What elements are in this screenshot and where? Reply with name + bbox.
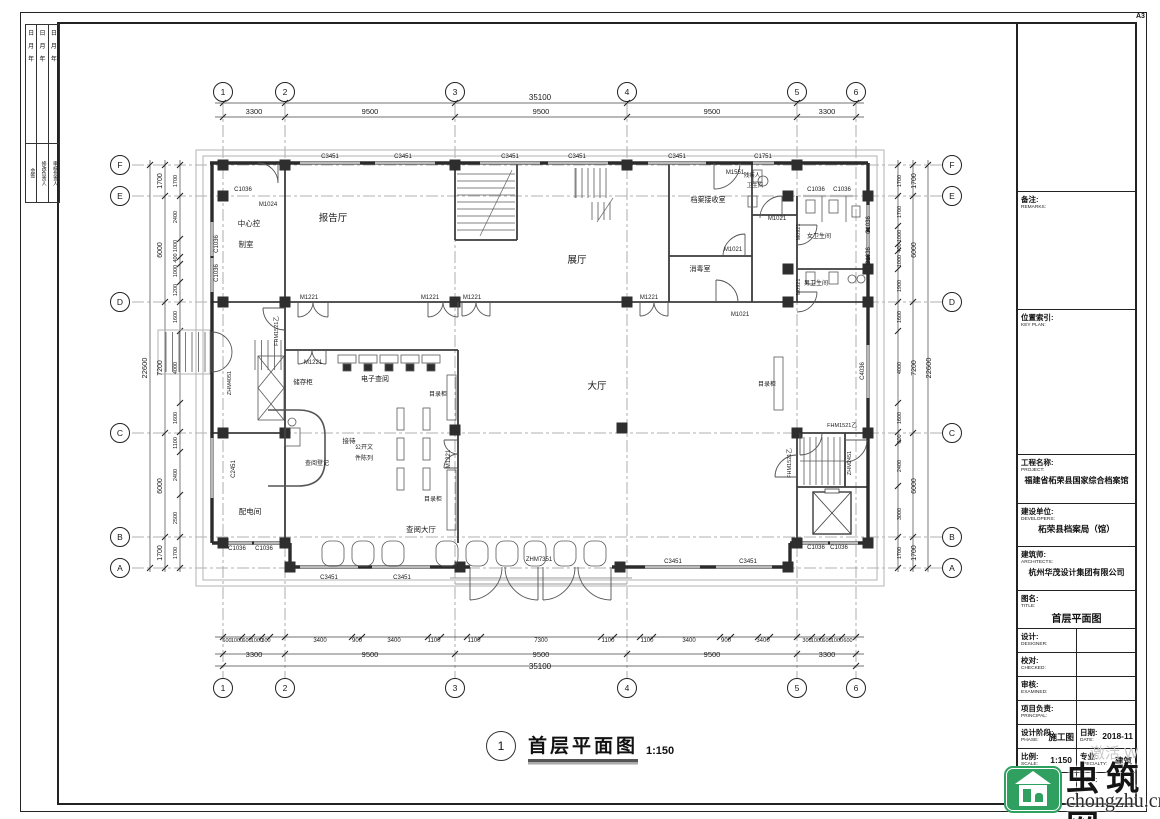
tag-label: M1221 [446, 449, 452, 468]
tag-label: C1751 [754, 154, 772, 160]
dimension-label: 4000 [173, 362, 179, 374]
tag-label: M1221 [304, 360, 323, 366]
dimension-label: 1100 [602, 638, 616, 644]
watermark-domain: chongzhu.cn [1066, 790, 1160, 813]
remarks-label: 备注: [1018, 192, 1135, 205]
principal-value-cell [1077, 701, 1135, 724]
dimension-label: 3400 [313, 638, 327, 644]
grid-bubble-label: A [949, 563, 955, 573]
room-label: 残疾人 [744, 171, 761, 179]
dimension-label: 9500 [362, 107, 379, 116]
tag-label: C1036 [866, 247, 872, 265]
room-label: 男卫生间 [804, 279, 828, 287]
grid-bubble-label: 4 [625, 87, 630, 97]
room-label: 储存柜 [293, 377, 313, 386]
grid-bubble-label: C [949, 428, 955, 438]
architects-label-en: ARCHITECTS: [1018, 560, 1135, 565]
architects-label: 建筑师: [1018, 547, 1135, 560]
title-block: 备注: REMARKS: 位置索引: KEY PLAN: 工程名称: PROJE… [1016, 22, 1135, 801]
tag-label: M0921 [796, 224, 802, 241]
designer-label-en: DESIGNER: [1018, 642, 1076, 647]
grid-bubble-label: 6 [854, 683, 859, 693]
room-label: 中心控 [238, 218, 261, 228]
floor-plan-canvas: 123456123456FEDCBAFEDCBA3510033009500950… [0, 0, 1160, 819]
dimension-label: 35100 [529, 662, 552, 671]
room-label: 目录柜 [758, 380, 776, 388]
tag-label: M1221 [300, 295, 319, 301]
dimension-label: 3300 [246, 650, 263, 659]
tag-label: C1036 [866, 216, 872, 234]
tag-label: C3451 [321, 154, 339, 160]
room-label: 档案接收室 [691, 195, 726, 204]
tag-label: C1036 [214, 264, 220, 282]
room-label: 目录柜 [429, 390, 447, 398]
dimension-label: 1000 [811, 638, 823, 644]
dimension-label: 3400 [682, 638, 696, 644]
room-label: 报告厅 [319, 212, 348, 224]
logo-house-body-icon [1019, 785, 1047, 806]
dimension-label: 9500 [362, 650, 379, 659]
grid-bubble-label: B [117, 532, 123, 542]
grid-bubble-label: 1 [221, 683, 226, 693]
dimension-label: 600 [897, 434, 903, 443]
architects-name: 杭州华茂设计集团有限公司 [1018, 567, 1135, 578]
grid-bubble-label: C [117, 428, 123, 438]
room-label: 接待 [343, 436, 357, 445]
room-label: 目录柜 [424, 495, 442, 503]
developers-section: 建设单位: DEVELOPERS: 柘荣县档案局（馆） [1018, 504, 1135, 547]
dimension-label: 1000 [231, 638, 243, 644]
examined-row: 审核: EXAMINED: [1018, 677, 1135, 701]
tag-label: M0921 [796, 279, 802, 296]
drawing-sheet: A3 日 月 年 会签 日 月 年 修改负责人 日 月 年 审核负责人 [0, 0, 1160, 819]
examined-label: 审核: [1018, 677, 1076, 690]
dimension-label: 1100 [468, 638, 482, 644]
tag-label: M1021 [724, 247, 743, 253]
tag-label: C3451 [320, 575, 338, 581]
tag-label: M1221 [640, 295, 659, 301]
dimension-label: 900 [352, 638, 363, 644]
architects-section: 建筑师: ARCHITECTS: 杭州华茂设计集团有限公司 [1018, 547, 1135, 591]
dimension-label: 1000 [831, 638, 843, 644]
dimension-label: 900 [721, 638, 732, 644]
tag-label: M1024 [259, 202, 278, 208]
grid-bubble-label: 2 [283, 683, 288, 693]
grid-bubble-label: 5 [795, 683, 800, 693]
tag-label: M1221 [421, 295, 440, 301]
dimension-label: 6000 [157, 478, 164, 494]
dimension-label: 22600 [924, 358, 933, 379]
title-block-logo-area [1018, 22, 1135, 192]
principal-label-en: PRINCIPAL: [1018, 714, 1076, 719]
tag-label: M1021 [731, 312, 750, 318]
date-value: 2018-11 [1102, 731, 1133, 741]
dimension-label: 1700 [157, 173, 164, 189]
plan-labels: 123456123456FEDCBAFEDCBA3510033009500950… [111, 83, 962, 698]
dimension-label: 22600 [140, 358, 149, 379]
tag-label: C3451 [394, 154, 412, 160]
dimension-label: 1000 [173, 265, 179, 277]
phase-value: 施工图 [1048, 731, 1074, 743]
grid-bubble-label: E [949, 191, 955, 201]
developers-label: 建设单位: [1018, 504, 1135, 517]
room-label: 展厅 [567, 255, 587, 266]
tag-label: M1551 [726, 170, 745, 176]
dimension-label: 6000 [157, 242, 164, 258]
dimension-label: 1700 [911, 173, 918, 189]
room-label: 制室 [239, 239, 254, 249]
tag-label: FHM1521乙 [786, 448, 793, 478]
tag-label: M1021 [768, 216, 787, 222]
dimension-label: 2500 [173, 512, 179, 524]
room-label: 女卫生间 [807, 232, 831, 240]
tag-label: C3451 [393, 575, 411, 581]
tag-label: ZHM7351 [526, 557, 553, 563]
dimension-label: 3400 [387, 638, 401, 644]
dimension-label: 2400 [173, 469, 179, 481]
tag-label: FHM1521乙 [827, 422, 857, 429]
checked-row: 校对: CHECKED: [1018, 653, 1135, 677]
room-label: 电子查阅 [361, 374, 389, 383]
dimension-label: 1000 [897, 255, 903, 267]
room-label: 查阅登记 [305, 459, 329, 467]
remarks-section: 备注: REMARKS: [1018, 192, 1135, 310]
developers-name: 柘荣县档案局（馆） [1018, 523, 1135, 535]
dimension-label: 600 [843, 638, 852, 644]
dimension-label: 7200 [157, 360, 164, 376]
designer-value-cell [1077, 629, 1135, 652]
key-plan-section: 位置索引: KEY PLAN: [1018, 310, 1135, 455]
project-label-en: PROJECT: [1018, 468, 1135, 473]
key-plan-label: 位置索引: [1018, 310, 1135, 323]
tag-label: C1036 [214, 235, 220, 253]
tag-label: C3451 [664, 559, 682, 565]
grid-bubble-label: F [949, 160, 954, 170]
tag-label: C1036 [228, 546, 246, 552]
checked-value-cell [1077, 653, 1135, 676]
dimension-label: 3000 [897, 508, 903, 520]
principal-row: 项目负责: PRINCIPAL: [1018, 701, 1135, 725]
drawing-number-bubble: 1 [486, 731, 516, 761]
key-plan-label-en: KEY PLAN: [1018, 323, 1135, 328]
dimension-label: 1100 [428, 638, 442, 644]
grid-bubble-label: 4 [625, 683, 630, 693]
dimension-label: 1000 [173, 240, 179, 252]
room-label: 卫生间 [747, 181, 764, 189]
developers-label-en: DEVELOPERS: [1018, 517, 1135, 522]
tag-label: C1036 [807, 545, 825, 551]
project-name: 福建省柘荣县国家综合档案馆 [1018, 475, 1135, 486]
dimension-label: 300 [261, 638, 270, 644]
dimension-label: 1600 [173, 311, 179, 323]
grid-bubble-label: D [949, 297, 955, 307]
examined-value-cell [1077, 677, 1135, 700]
drawing-title-scale: 1:150 [646, 745, 674, 757]
dimension-label: 6000 [911, 242, 918, 258]
tag-label: C1036 [830, 545, 848, 551]
remarks-label-en: REMARKS: [1018, 205, 1135, 210]
dimension-label: 1100 [641, 638, 655, 644]
dimension-label: 9500 [704, 650, 721, 659]
tag-label: C3451 [568, 154, 586, 160]
examined-label-en: EXAMINED: [1018, 690, 1076, 695]
dimension-label: 3300 [819, 107, 836, 116]
dimension-label: 9500 [533, 107, 550, 116]
room-label: 大厅 [587, 380, 607, 392]
dimension-label: 6000 [911, 478, 918, 494]
dimension-label: 400 [897, 243, 903, 252]
dimension-label: 1700 [897, 206, 903, 218]
grid-bubble-label: 6 [854, 87, 859, 97]
checked-label-en: CHECKED: [1018, 666, 1076, 671]
logo-glyph [1035, 793, 1043, 802]
room-label: 查阅大厅 [406, 524, 436, 534]
tag-label: ZHM2451 [847, 451, 853, 475]
dimension-label: 3300 [246, 107, 263, 116]
dimension-label: 2400 [897, 460, 903, 472]
dimension-label: 1700 [173, 547, 179, 559]
room-label: 配电间 [239, 506, 262, 516]
dimension-label: 1600 [897, 412, 903, 424]
chongzhu-logo [1004, 766, 1062, 813]
dimension-label: 1600 [173, 412, 179, 424]
dimension-label: 400 [173, 253, 179, 262]
grid-bubble-label: F [117, 160, 122, 170]
drawing-name-section: 图名: TITLE: 首层平面图 [1018, 591, 1135, 629]
tag-label: M1221 [463, 295, 482, 301]
dimension-label: 1700 [897, 175, 903, 187]
dimension-label: 2400 [173, 211, 179, 223]
dimension-label: 4000 [897, 362, 903, 374]
project-label: 工程名称: [1018, 455, 1135, 468]
dimension-label: 1700 [157, 545, 164, 561]
logo-glyph [1023, 789, 1031, 802]
tag-label: C2451 [231, 460, 237, 478]
drawing-title-text: 首层平面图 [528, 736, 638, 762]
dimension-label: 9500 [533, 650, 550, 659]
dimension-label: 9500 [704, 107, 721, 116]
principal-label: 项目负责: [1018, 701, 1076, 714]
tag-label: C4036 [860, 362, 866, 380]
dimension-label: 1900 [897, 280, 903, 292]
drawing-name-label-en: TITLE: [1018, 604, 1135, 609]
dimension-label: 35100 [529, 93, 552, 102]
grid-bubble-label: 1 [221, 87, 226, 97]
tag-label: C1036 [234, 187, 252, 193]
dimension-label: 1700 [173, 175, 179, 187]
grid-bubble-label: E [117, 191, 123, 201]
tag-label: C1036 [255, 546, 273, 552]
dimension-label: 1700 [911, 545, 918, 561]
dimension-label: 1100 [173, 437, 179, 449]
tag-label: C1036 [807, 187, 825, 193]
dimension-label: 1000 [897, 230, 903, 242]
room-label: 消毒室 [690, 264, 711, 273]
tag-label: C3451 [739, 559, 757, 565]
checked-label: 校对: [1018, 653, 1076, 666]
dimension-label: 3400 [756, 638, 770, 644]
drawing-title: 1 首层平面图 1:150 [486, 731, 674, 761]
grid-bubble-label: 3 [453, 683, 458, 693]
tag-label: C1036 [833, 187, 851, 193]
logo-house-roof-icon [1015, 771, 1051, 784]
drawing-name-label: 图名: [1018, 591, 1135, 604]
grid-bubble-label: 5 [795, 87, 800, 97]
dimension-label: 3300 [819, 650, 836, 659]
drawing-name-value: 首层平面图 [1018, 610, 1135, 625]
dimension-label: 1700 [897, 547, 903, 559]
dimension-label: 7300 [534, 638, 548, 644]
project-section: 工程名称: PROJECT: 福建省柘荣县国家综合档案馆 [1018, 455, 1135, 504]
dimension-label: 7200 [911, 360, 918, 376]
grid-bubble-label: 3 [453, 87, 458, 97]
grid-bubble-label: A [117, 563, 123, 573]
dimension-label: 1200 [173, 284, 179, 296]
tag-label: C3451 [501, 154, 519, 160]
tag-label: FHM1521乙 [273, 316, 280, 346]
tag-label: ZHM4051 [227, 371, 233, 395]
grid-bubble-label: D [117, 297, 123, 307]
dimension-label: 1600 [897, 311, 903, 323]
grid-bubble-label: 2 [283, 87, 288, 97]
tag-label: C3451 [668, 154, 686, 160]
grid-bubble-label: B [949, 532, 955, 542]
designer-row: 设计: DESIGNER: [1018, 629, 1135, 653]
room-label: 件陈列 [355, 454, 373, 462]
room-label: 公开文 [355, 443, 373, 451]
designer-label: 设计: [1018, 629, 1076, 642]
furniture-layer [166, 168, 865, 566]
